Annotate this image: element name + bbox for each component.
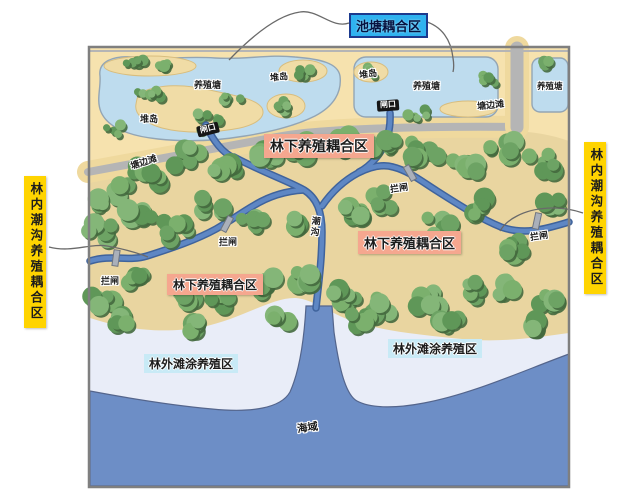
label-aquaculture-pond-left: 养殖塘	[194, 78, 221, 91]
callout-pond-coupling-zone: 池塘耦合区	[349, 13, 428, 38]
label-pile-island-middle: 堆岛	[358, 66, 378, 81]
map-illustration	[0, 0, 640, 504]
schematic-map: 池塘耦合区 林下养殖耦合区 林下养殖耦合区 林下养殖耦合区 林内潮沟养殖耦合区 …	[0, 0, 640, 504]
callout-outer-flat-zone-right: 林外滩涂养殖区	[388, 339, 482, 358]
callout-inner-creek-zone-left: 林内潮沟养殖耦合区	[24, 176, 46, 328]
label-pile-island-big: 堆岛	[140, 112, 158, 125]
label-barrier-gate-1: 拦闸	[101, 274, 119, 287]
label-aquaculture-pond-middle: 养殖塘	[413, 79, 440, 92]
sluice-gate-middle: 闸口	[377, 99, 400, 111]
callout-outer-flat-zone-left: 林外滩涂养殖区	[144, 354, 238, 373]
label-aquaculture-pond-right: 养殖塘	[537, 80, 563, 92]
callout-under-forest-zone-right: 林下养殖耦合区	[358, 231, 461, 254]
label-barrier-gate-3: 拦闸	[389, 180, 409, 195]
label-sea: 海域	[296, 419, 319, 437]
callout-under-forest-zone-left: 林下养殖耦合区	[167, 274, 263, 295]
callout-under-forest-zone-top: 林下养殖耦合区	[264, 134, 374, 158]
label-pile-island-top: 堆岛	[269, 69, 288, 84]
label-barrier-gate-2: 拦闸	[219, 235, 237, 248]
callout-inner-creek-zone-right: 林内潮沟养殖耦合区	[584, 142, 606, 294]
label-tidal-creek: 潮沟	[307, 215, 322, 238]
label-barrier-gate-4: 拦闸	[529, 228, 549, 243]
